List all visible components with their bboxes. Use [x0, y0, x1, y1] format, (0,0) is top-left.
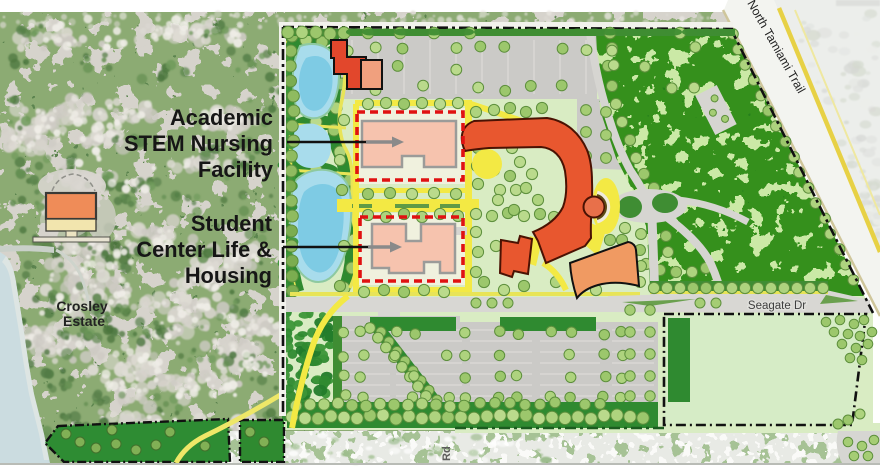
svg-text:Academic: Academic: [170, 105, 273, 130]
svg-text:Facility: Facility: [198, 157, 273, 182]
svg-text:Crosley: Crosley: [56, 298, 108, 314]
svg-text:Center Life &: Center Life &: [136, 237, 272, 262]
svg-text:Housing: Housing: [185, 263, 272, 288]
svg-text:Student: Student: [191, 211, 272, 236]
svg-text:Seagate Dr: Seagate Dr: [748, 300, 806, 312]
svg-text:STEM Nursing: STEM Nursing: [124, 131, 273, 156]
svg-text:Estate: Estate: [63, 313, 105, 329]
svg-text:Rd: Rd: [441, 446, 453, 461]
